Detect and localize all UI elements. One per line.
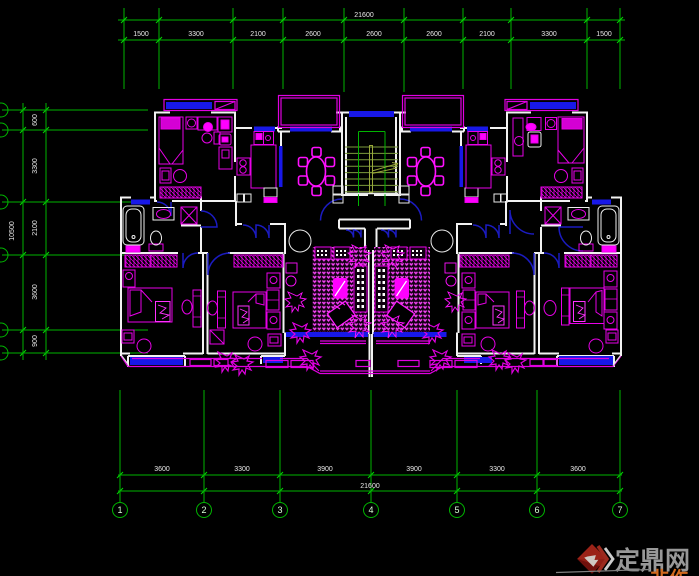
svg-text:非作: 非作: [650, 567, 688, 576]
svg-text:6: 6: [534, 505, 539, 515]
svg-text:2600: 2600: [426, 31, 442, 38]
svg-text:600: 600: [32, 114, 39, 126]
svg-text:1: 1: [117, 505, 122, 515]
svg-text:3300: 3300: [234, 466, 250, 473]
svg-text:1500: 1500: [133, 31, 149, 38]
svg-text:3900: 3900: [406, 466, 422, 473]
svg-text:2100: 2100: [32, 220, 39, 236]
svg-text:2100: 2100: [479, 31, 495, 38]
svg-text:2600: 2600: [366, 31, 382, 38]
svg-text:3300: 3300: [489, 466, 505, 473]
svg-text:3600: 3600: [154, 466, 170, 473]
svg-text:2600: 2600: [305, 31, 321, 38]
svg-text:3600: 3600: [570, 466, 586, 473]
svg-text:3900: 3900: [317, 466, 333, 473]
svg-text:21600: 21600: [360, 483, 380, 490]
svg-text:4: 4: [368, 505, 373, 515]
svg-text:3: 3: [277, 505, 282, 515]
svg-text:3300: 3300: [541, 31, 557, 38]
svg-text:10500: 10500: [9, 221, 16, 241]
svg-text:3300: 3300: [188, 31, 204, 38]
svg-text:3600: 3600: [32, 284, 39, 300]
svg-text:3300: 3300: [32, 158, 39, 174]
svg-text:2100: 2100: [250, 31, 266, 38]
svg-text:5: 5: [454, 505, 459, 515]
svg-text:1500: 1500: [596, 31, 612, 38]
svg-text:7: 7: [617, 505, 622, 515]
svg-text:21600: 21600: [354, 12, 374, 19]
svg-text:900: 900: [32, 335, 39, 347]
svg-text:2: 2: [201, 505, 206, 515]
